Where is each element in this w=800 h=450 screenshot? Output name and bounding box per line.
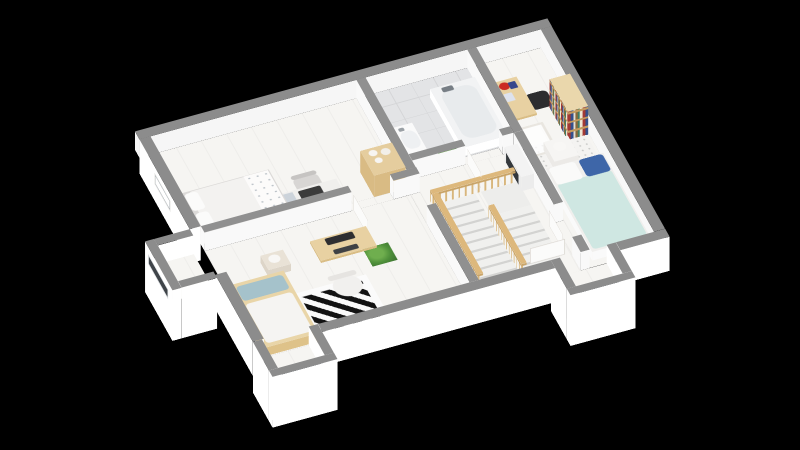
- wall-bedroomR-west-b-face-south: [581, 249, 590, 270]
- bay-west-front-face-south: [172, 288, 181, 341]
- wall-bedroomR-west-a-face-south: [554, 202, 563, 223]
- bay-west-side-south-face-south: [182, 278, 217, 338]
- floor-plan-scene: [0, 0, 800, 450]
